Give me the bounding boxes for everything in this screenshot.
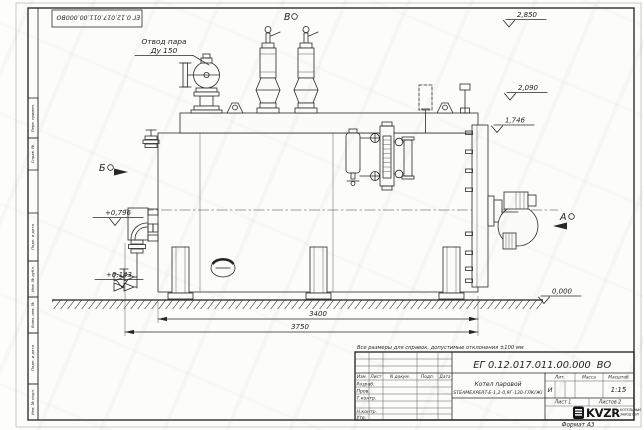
sheet-number: Лист 1 [554, 400, 572, 406]
view-b-letter: Б [99, 163, 106, 174]
col-list: Лист [370, 374, 382, 380]
product-model: STEAMEXPERT-Е-1,2-0,9Г-130-ГЛК(Ж) [453, 390, 543, 396]
col-izm: Изм. [357, 374, 367, 380]
stamp-podp-data-2: Подп. и дата [30, 344, 35, 371]
mass-label: Масса [582, 375, 596, 381]
row-ncontrol: Н.контр. [357, 409, 378, 415]
stamp-perv-primen: Перв. примен. [30, 104, 35, 133]
elevation-0000-value: 0,000 [552, 288, 573, 296]
stamp-podp-data-1: Подп. и дата [30, 223, 35, 250]
dim-3750-value: 3750 [291, 323, 309, 331]
reference-note: Все размеры для справок, допустимые откл… [357, 345, 524, 351]
steam-outlet-line2: Ду 150 [150, 46, 178, 55]
elevation-2850-value: 2,850 [517, 11, 538, 19]
row-developed: Разраб. [357, 382, 375, 388]
boiler-top-band [180, 113, 478, 133]
col-podp: Подп. [421, 374, 434, 380]
view-a-letter: А [559, 212, 567, 223]
col-ndokum: N докум. [390, 374, 410, 380]
rotated-designation-suffix: ВО [56, 14, 65, 21]
logo-sub1: КОТЕЛЬНЫЙ [620, 407, 641, 412]
stamp-vzam-inv: Взам. инв. № [30, 302, 35, 328]
elevation-1746-value: 1,746 [505, 117, 526, 125]
lit-label: Лит. [554, 375, 565, 381]
elevation-0143-value: +0,143 [106, 271, 132, 279]
elevation-0796-value: +0,796 [105, 209, 131, 217]
designation-number: ЕГ 0.12.017.011.00.000 [473, 360, 591, 371]
stamp-sprav-no: Справ. № [30, 145, 35, 164]
sheets-total: Листов 2 [598, 400, 622, 406]
row-checked: Пров. [357, 389, 370, 395]
elevation-2090-value: 2,090 [518, 84, 539, 92]
scale-value: 1:15 [611, 386, 627, 394]
rotated-designation-number: ЕГ 0.12.017.011.00.000 [66, 14, 140, 21]
logo-text: KVZR [586, 406, 620, 420]
designation-suffix: ВО [597, 360, 612, 371]
row-tcontrol: Т.контр. [357, 396, 377, 402]
view-v-letter: В [284, 12, 291, 23]
product-title: Котел паровой [474, 381, 521, 388]
stamp-inv-dubl: Инв. № дубл. [30, 266, 35, 292]
steam-outlet-line1: Отвод пара [141, 37, 187, 46]
lit-value: И [548, 386, 553, 394]
logo-sub2: ЗАВОД РЭП [620, 413, 640, 417]
format-label: Формат А3 [561, 423, 594, 429]
stamp-inv-podl: Инв. № подл. [30, 389, 35, 415]
row-approved: Утв. [357, 415, 367, 421]
engineering-drawing-sheet: Перв. примен. Справ. № Подп. и дата Инв.… [0, 0, 644, 430]
col-data: Дата [438, 374, 450, 380]
scale-label: Масштаб [608, 375, 629, 381]
ground [52, 300, 543, 309]
manhole [211, 259, 235, 277]
dim-3400-value: 3400 [309, 310, 327, 318]
